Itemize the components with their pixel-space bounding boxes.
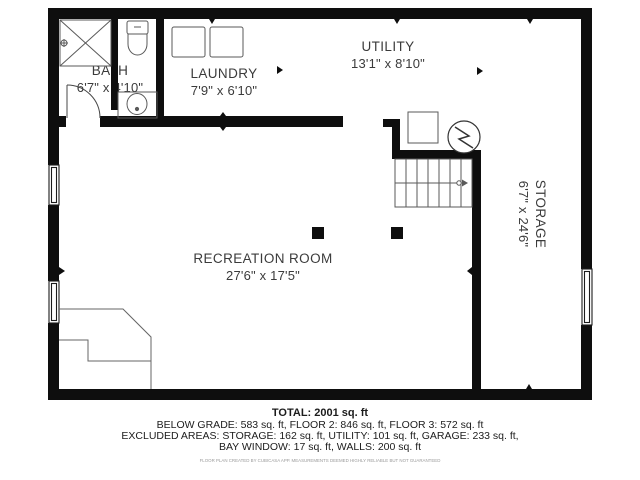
room-name: UTILITY xyxy=(351,38,425,55)
room-label-utility: UTILITY 13'1" x 8'10" xyxy=(351,38,425,72)
room-name: STORAGE xyxy=(532,180,549,249)
room-label-laundry: LAUNDRY 7'9" x 6'10" xyxy=(190,65,257,99)
floor-plan-page: BATH 6'7" x 4'10" LAUNDRY 7'9" x 6'10" U… xyxy=(0,0,640,480)
room-name: BATH xyxy=(77,62,143,79)
room-dims: 6'7" x 4'10" xyxy=(77,79,143,96)
room-dims: 13'1" x 8'10" xyxy=(351,55,425,72)
room-dims: 27'6" x 17'5" xyxy=(193,267,332,284)
room-dims: 7'9" x 6'10" xyxy=(190,82,257,99)
room-dims: 6'7" x 24'6" xyxy=(515,180,532,249)
disclaimer-text: FLOOR PLAN CREATED BY CUBICASA APP. MEAS… xyxy=(144,458,496,463)
area-summary: TOTAL: 2001 sq. ft BELOW GRADE: 583 sq. … xyxy=(0,407,640,467)
room-name: RECREATION ROOM xyxy=(193,250,332,267)
room-label-recreation: RECREATION ROOM 27'6" x 17'5" xyxy=(193,250,332,284)
room-label-bath: BATH 6'7" x 4'10" xyxy=(77,62,143,96)
room-label-storage: STORAGE 6'7" x 24'6" xyxy=(515,180,549,249)
summary-line: BAY WINDOW: 17 sq. ft, WALLS: 200 sq. ft xyxy=(0,442,640,453)
room-name: LAUNDRY xyxy=(190,65,257,82)
